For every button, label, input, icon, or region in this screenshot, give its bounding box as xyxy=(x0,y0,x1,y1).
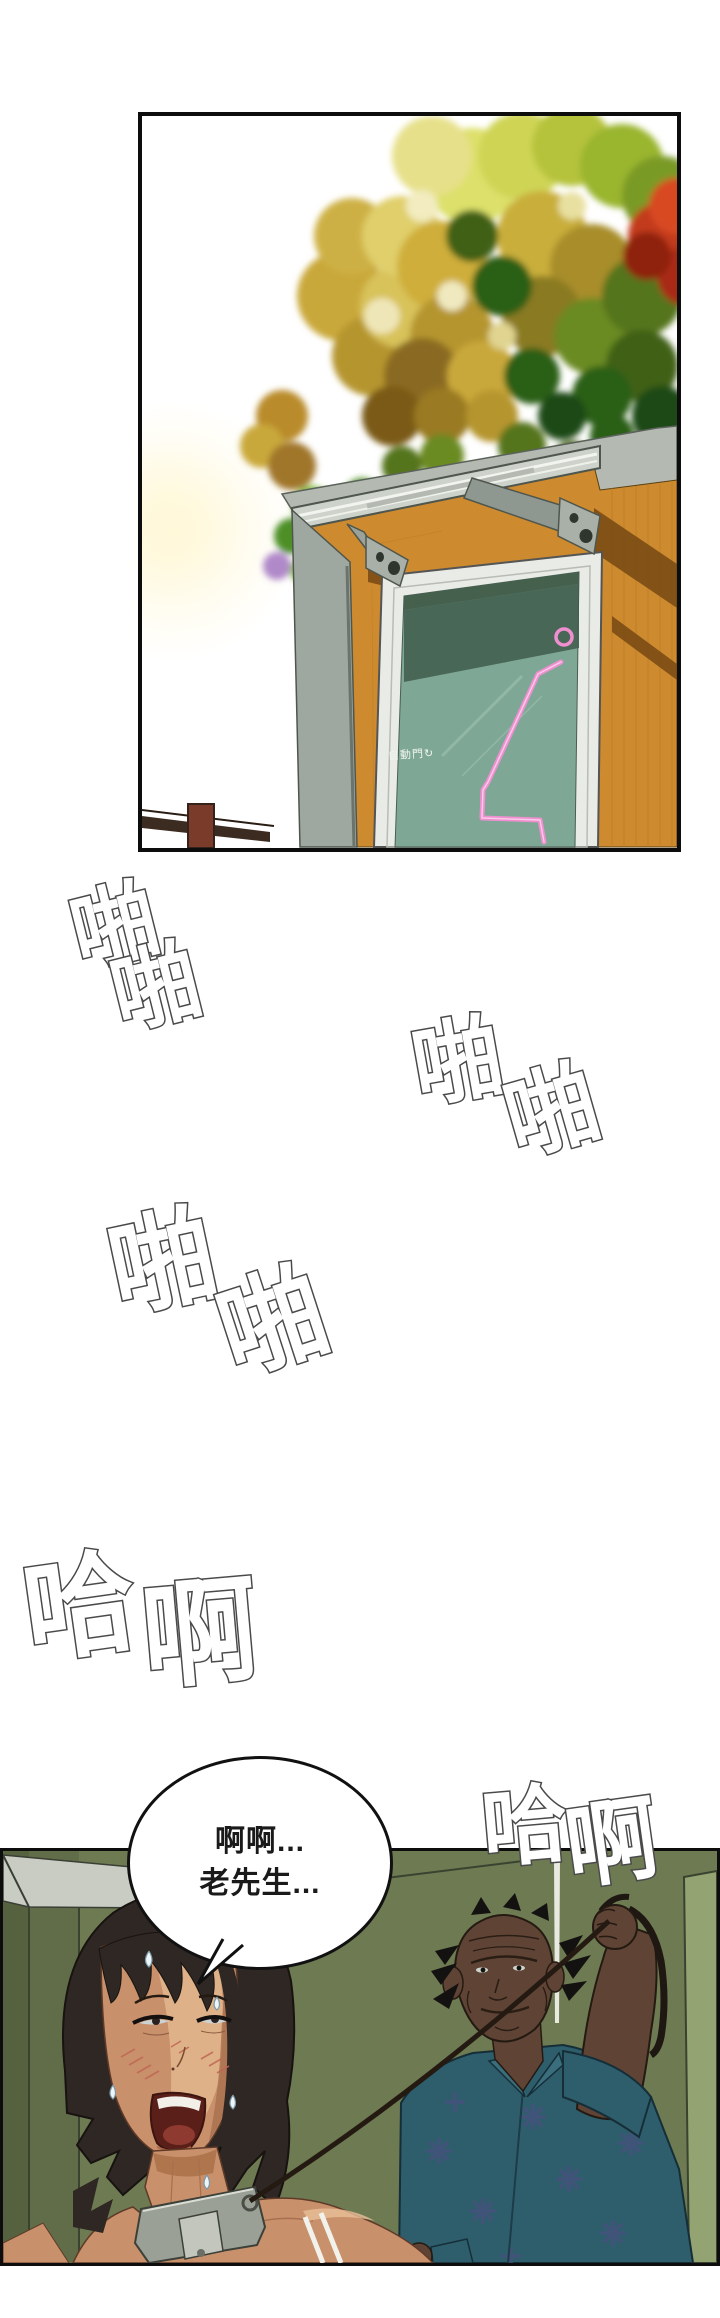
sfx-text: 啪 xyxy=(100,1200,226,1326)
sfx-text: 啪 xyxy=(103,935,210,1042)
door-sign-text: 自動門 xyxy=(388,748,425,762)
automatic-door xyxy=(374,552,602,847)
side-door-panel xyxy=(684,1871,717,2263)
speech-bubble-tail xyxy=(188,1934,258,1994)
railing xyxy=(142,804,274,848)
sfx-text: 啊 xyxy=(560,1792,664,1896)
speech-line: 啊啊... xyxy=(215,1821,305,1863)
comic-panel-exterior: 自動門↻ xyxy=(138,112,681,852)
door-sign: 自動門↻ xyxy=(387,744,434,763)
sfx-text: 啊 xyxy=(137,1571,263,1697)
sfx-text: 啪 xyxy=(495,1055,609,1169)
sfx-text: 哈 xyxy=(17,1545,143,1671)
rotate-arrow-icon: ↻ xyxy=(424,747,435,760)
wall-seam xyxy=(554,1857,560,2023)
door-jamb xyxy=(292,510,357,847)
sfx-text: 啪 xyxy=(206,1256,340,1390)
speech-line: 老先生... xyxy=(199,1863,320,1905)
speech-bubble: 啊啊... 老先生... xyxy=(127,1756,393,1970)
sfx-text: 啪 xyxy=(406,1011,510,1115)
sfx-text: 哈 xyxy=(478,1780,571,1873)
exterior-scene-illustration xyxy=(142,116,677,848)
